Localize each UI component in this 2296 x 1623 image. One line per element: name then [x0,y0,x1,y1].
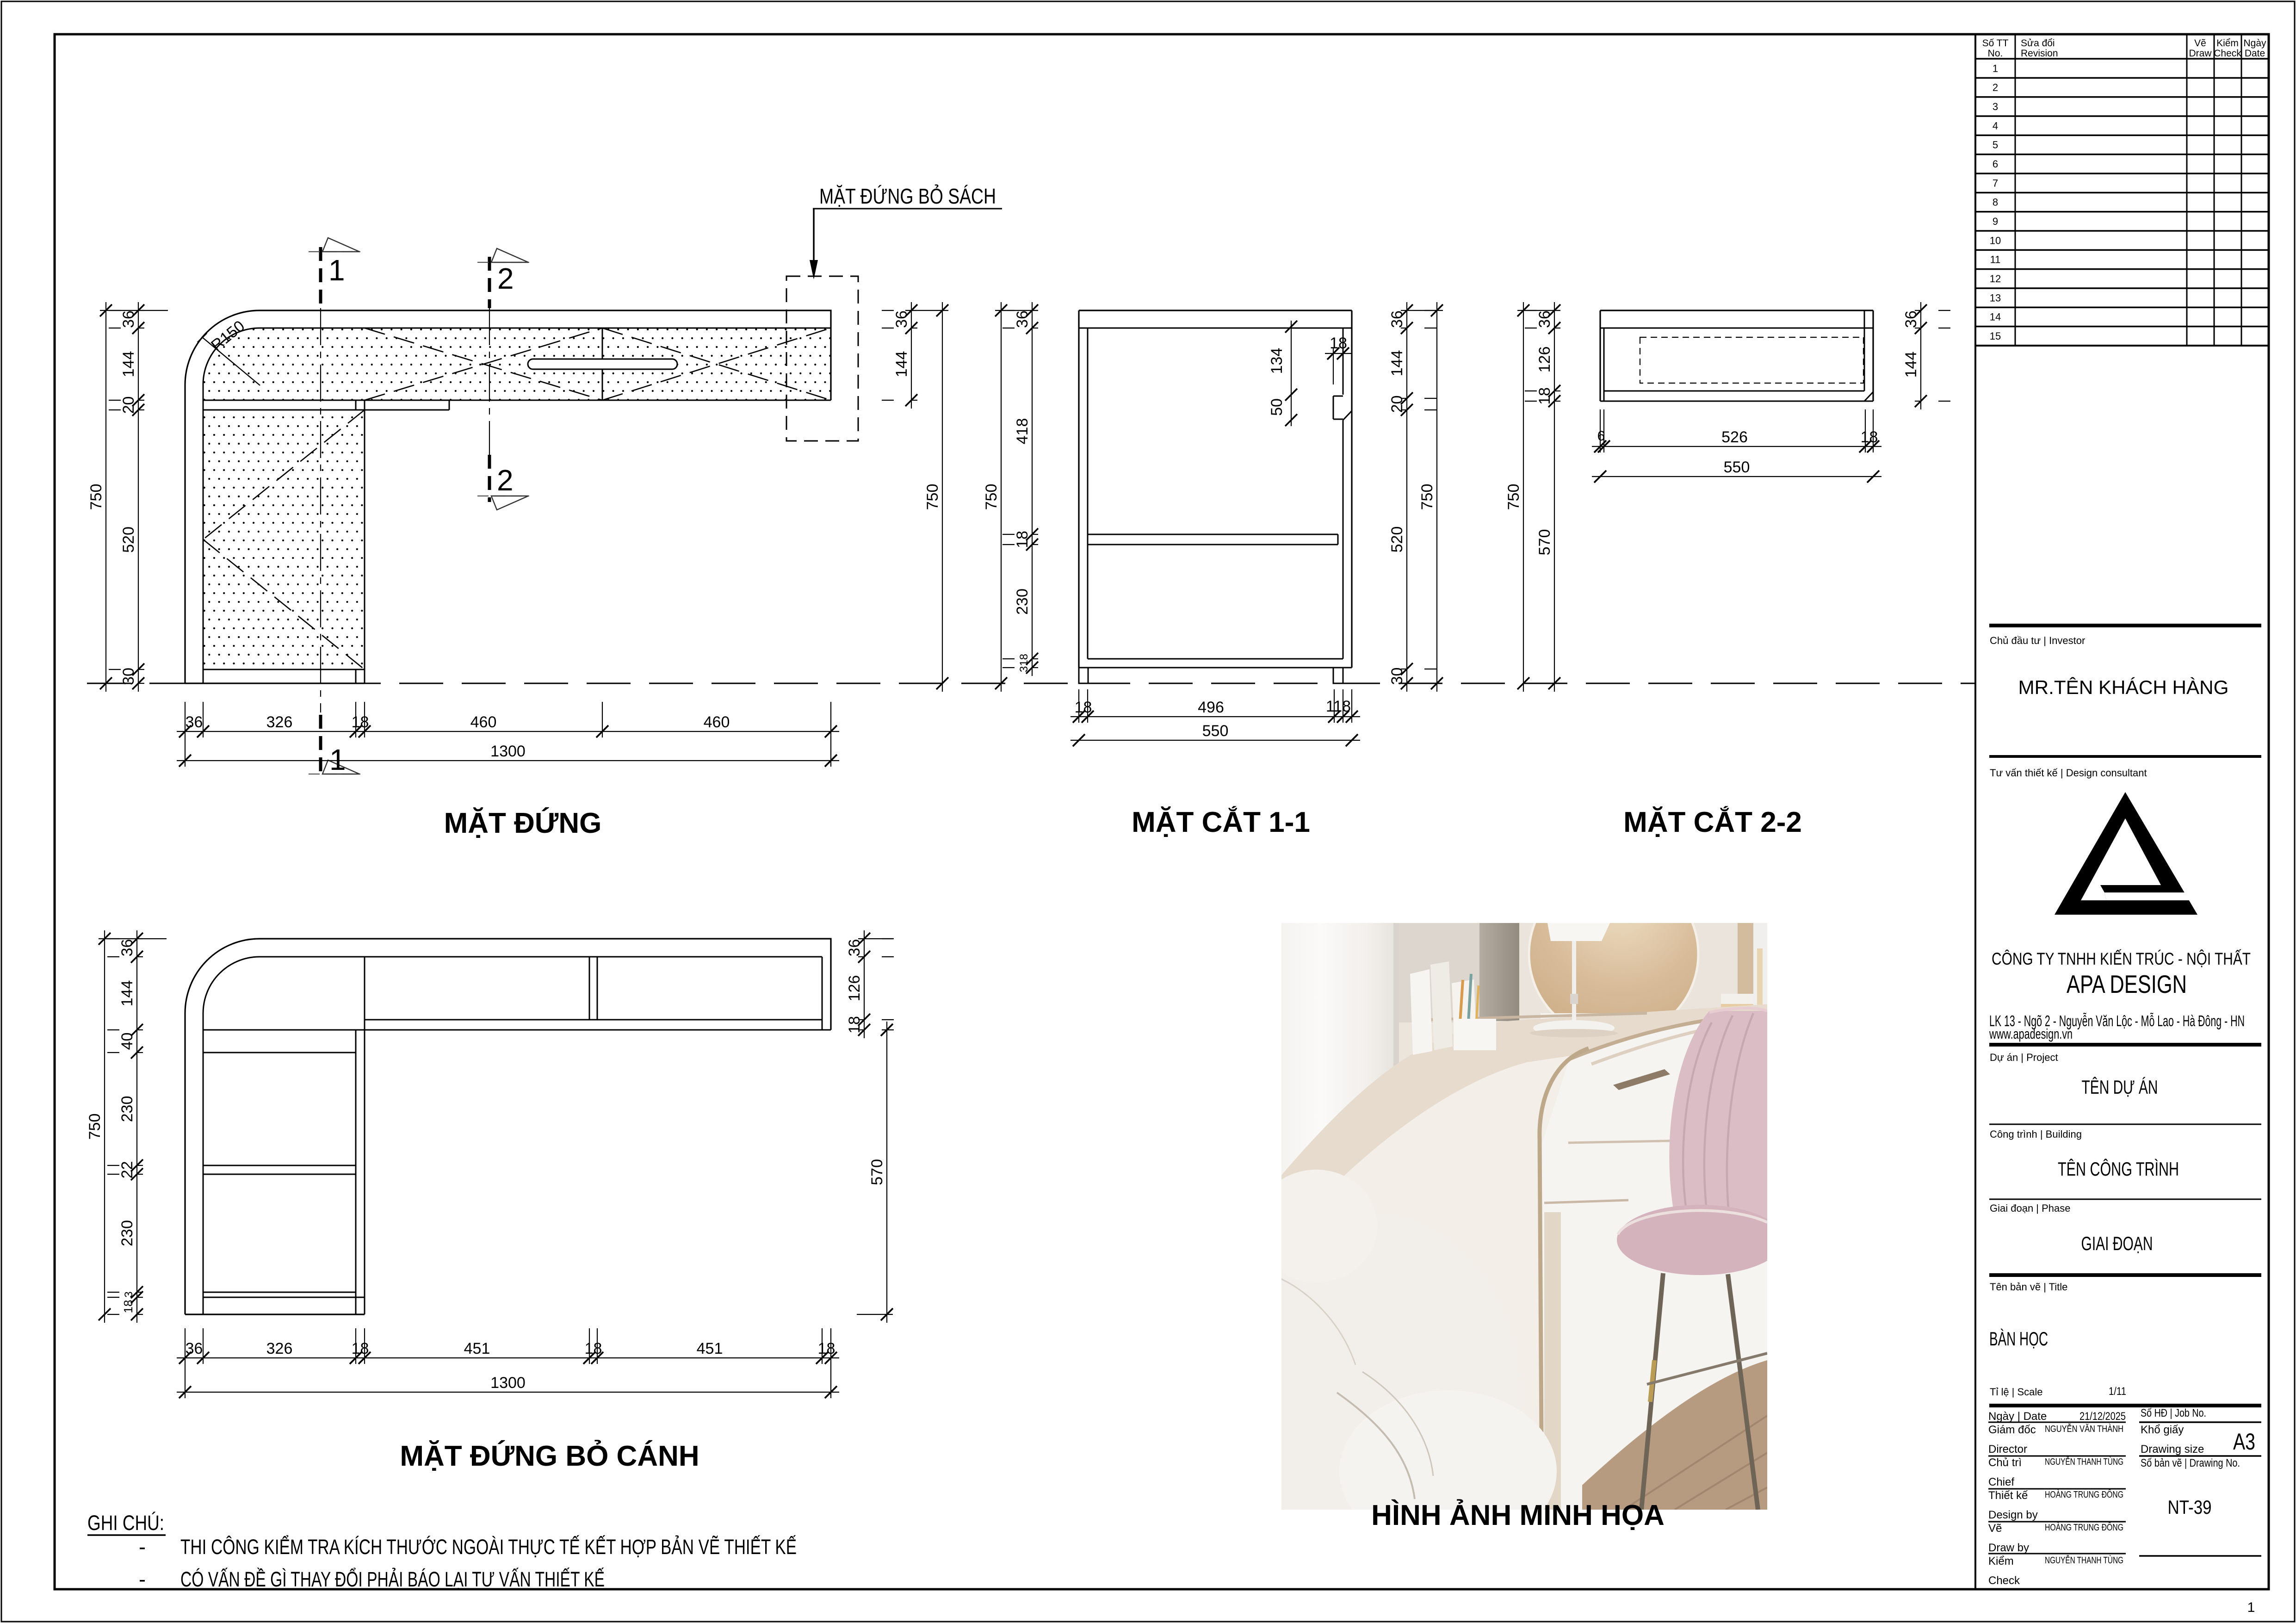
svg-text:Giai đoạn | Phase: Giai đoạn | Phase [1990,1202,2071,1214]
svg-text:18: 18 [1075,699,1092,716]
svg-text:134: 134 [1268,348,1286,374]
svg-text:36: 36 [1536,310,1553,328]
svg-text:40: 40 [118,1033,136,1050]
svg-text:451: 451 [464,1340,490,1357]
svg-text:4: 4 [1993,120,1998,131]
svg-text:HOÀNG TRUNG ĐÔNG: HOÀNG TRUNG ĐÔNG [2045,1489,2123,1500]
svg-text:Design by: Design by [1988,1509,2038,1521]
svg-text:144: 144 [893,351,910,378]
svg-text:Draw: Draw [2189,48,2212,59]
svg-text:A3: A3 [2233,1429,2255,1455]
svg-text:5: 5 [1993,139,1998,151]
svg-text:36: 36 [120,310,137,328]
svg-text:6: 6 [1597,428,1605,444]
svg-text:Tư vấn thiết kế | Design consu: Tư vấn thiết kế | Design consultant [1990,767,2147,779]
svg-text:Số TT: Số TT [1982,38,2009,49]
svg-text:TÊN CÔNG TRÌNH: TÊN CÔNG TRÌNH [2058,1158,2179,1180]
svg-text:36: 36 [1014,310,1031,328]
svg-text:18: 18 [818,1340,835,1357]
svg-text:520: 520 [120,527,137,553]
svg-text:1: 1 [328,254,345,287]
svg-text:126: 126 [1536,347,1553,373]
svg-text:Vẽ: Vẽ [1988,1522,2002,1535]
svg-text:BÀN HỌC: BÀN HỌC [1989,1328,2048,1350]
svg-text:GHI CHÚ:: GHI CHÚ: [87,1511,164,1535]
svg-text:Draw by: Draw by [1988,1542,2029,1554]
svg-text:CÓ VẤN ĐỀ GÌ THAY ĐỔI PHẢI BÁO: CÓ VẤN ĐỀ GÌ THAY ĐỔI PHẢI BÁO LẠI TƯ VẤ… [180,1567,605,1591]
svg-text:570: 570 [1536,529,1553,556]
svg-text:NT-39: NT-39 [2168,1496,2212,1518]
svg-text:No.: No. [1988,48,2003,59]
svg-text:36: 36 [1902,310,1920,328]
svg-text:20: 20 [120,396,137,414]
svg-text:30: 30 [120,668,137,685]
svg-text:21/12/2025: 21/12/2025 [2079,1410,2126,1423]
svg-text:13: 13 [1990,292,2001,304]
svg-text:Công trình | Building: Công trình | Building [1990,1128,2082,1140]
svg-text:750: 750 [86,1114,104,1140]
svg-text:750: 750 [924,484,941,510]
svg-text:Dự án | Project: Dự án | Project [1990,1052,2058,1063]
svg-text:18: 18 [846,1016,863,1034]
svg-text:50: 50 [1268,398,1286,416]
svg-text:Chief: Chief [1988,1476,2014,1488]
svg-text:18: 18 [1014,531,1031,548]
svg-text:GIAI ĐOẠN: GIAI ĐOẠN [2081,1233,2153,1254]
svg-text:20: 20 [1388,396,1406,413]
svg-text:144: 144 [1388,350,1406,377]
svg-text:Chủ trì: Chủ trì [1988,1456,2022,1469]
svg-text:-: - [139,1567,146,1591]
svg-text:11: 11 [1990,254,2001,266]
svg-text:Vẽ: Vẽ [2194,38,2206,49]
svg-text:18: 18 [352,1340,369,1357]
svg-text:Giám đốc: Giám đốc [1988,1424,2036,1436]
svg-text:TÊN DỰ ÁN: TÊN DỰ ÁN [2082,1076,2158,1098]
svg-text:550: 550 [1202,722,1229,740]
svg-text:1: 1 [1993,62,1998,74]
svg-text:460: 460 [704,713,730,731]
svg-text:Ngày | Date: Ngày | Date [1988,1410,2047,1423]
svg-text:230: 230 [118,1096,136,1122]
svg-text:MẶT ĐỨNG BỎ SÁCH: MẶT ĐỨNG BỎ SÁCH [819,184,996,208]
svg-text:18: 18 [1536,387,1553,405]
svg-text:460: 460 [470,713,497,731]
svg-text:118: 118 [1326,698,1351,715]
svg-text:14: 14 [1990,311,2001,323]
svg-text:Ngày: Ngày [2243,38,2266,49]
svg-text:NGUYỄN VĂN THÀNH: NGUYỄN VĂN THÀNH [2045,1424,2123,1434]
svg-text:30: 30 [1388,668,1406,685]
svg-text:Tỉ lệ | Scale: Tỉ lệ | Scale [1990,1386,2043,1398]
svg-text:Thiết kế: Thiết kế [1988,1489,2028,1502]
svg-text:1/11: 1/11 [2109,1385,2126,1398]
svg-text:CÔNG TY TNHH KIẾN TRÚC - NỘI T: CÔNG TY TNHH KIẾN TRÚC - NỘI THẤT [1992,949,2251,968]
svg-text:1: 1 [2247,1600,2255,1615]
svg-text:550: 550 [1724,458,1750,476]
svg-text:1300: 1300 [490,743,526,760]
svg-text:Date: Date [2245,48,2265,59]
svg-text:2: 2 [497,464,514,497]
svg-text:MẶT CẮT 1-1: MẶT CẮT 1-1 [1132,806,1310,838]
svg-text:451: 451 [697,1340,723,1357]
svg-text:APA DESIGN: APA DESIGN [2067,970,2187,998]
svg-text:Drawing size: Drawing size [2141,1443,2204,1456]
svg-text:22: 22 [118,1161,136,1179]
svg-text:126: 126 [846,975,863,1002]
svg-text:1: 1 [329,743,346,776]
svg-text:Revision: Revision [2021,48,2058,59]
svg-text:230: 230 [118,1220,136,1246]
svg-text:750: 750 [983,484,1000,510]
svg-text:526: 526 [1721,428,1748,446]
svg-text:www.apadesign.vn: www.apadesign.vn [1989,1026,2073,1042]
svg-text:Sửa đổi: Sửa đổi [2021,38,2055,49]
svg-text:7: 7 [1993,177,1998,189]
svg-text:8: 8 [1993,197,1998,208]
svg-text:750: 750 [1505,484,1522,510]
svg-text:-: - [139,1535,146,1559]
svg-text:Chủ đầu tư | Investor: Chủ đầu tư | Investor [1990,635,2085,646]
svg-text:750: 750 [87,484,105,510]
svg-text:144: 144 [1902,352,1920,378]
svg-text:570: 570 [868,1159,886,1185]
svg-text:MẶT ĐỨNG: MẶT ĐỨNG [444,807,602,839]
svg-text:2: 2 [497,262,514,295]
svg-text:15: 15 [1990,330,2001,342]
svg-text:18: 18 [121,1300,135,1313]
svg-text:10: 10 [1990,235,2001,246]
svg-text:1300: 1300 [490,1374,526,1392]
svg-text:520: 520 [1388,527,1406,553]
svg-text:418: 418 [1014,418,1031,445]
svg-text:HOÀNG TRUNG ĐÔNG: HOÀNG TRUNG ĐÔNG [2045,1522,2123,1533]
svg-text:12: 12 [1990,273,2001,285]
svg-text:144: 144 [118,980,136,1007]
svg-text:Số HĐ | Job No.: Số HĐ | Job No. [2141,1407,2206,1419]
svg-text:326: 326 [266,1340,293,1357]
svg-text:Check: Check [2214,48,2241,59]
svg-text:3: 3 [1993,101,1998,112]
svg-text:HÌNH ẢNH MINH HỌA: HÌNH ẢNH MINH HỌA [1371,1499,1665,1531]
svg-text:MR.TÊN KHÁCH HÀNG: MR.TÊN KHÁCH HÀNG [2018,676,2229,698]
svg-text:36: 36 [1388,310,1406,328]
svg-text:496: 496 [1198,699,1224,716]
svg-text:230: 230 [1014,588,1031,615]
svg-text:Tên bản vẽ | Title: Tên bản vẽ | Title [1990,1281,2067,1293]
svg-text:18: 18 [352,713,369,731]
svg-text:318: 318 [1018,654,1030,672]
svg-text:Check: Check [1988,1574,2020,1587]
svg-text:Khổ giấy: Khổ giấy [2141,1424,2184,1436]
svg-text:MẶT CẮT 2-2: MẶT CẮT 2-2 [1623,806,1802,838]
svg-text:Số bản vẽ | Drawing No.: Số bản vẽ | Drawing No. [2141,1457,2240,1469]
svg-text:18: 18 [1330,335,1347,352]
svg-text:THI CÔNG KIỂM TRA KÍCH THƯỚC N: THI CÔNG KIỂM TRA KÍCH THƯỚC NGOÀI THỰC … [180,1535,797,1559]
svg-text:144: 144 [120,351,137,378]
svg-text:MẶT ĐỨNG BỎ CÁNH: MẶT ĐỨNG BỎ CÁNH [400,1440,699,1472]
svg-text:6: 6 [1993,158,1998,170]
svg-text:750: 750 [1418,484,1436,510]
svg-text:36: 36 [846,939,863,957]
svg-text:9: 9 [1993,216,1998,227]
svg-text:36: 36 [893,310,910,328]
svg-text:Director: Director [1988,1443,2027,1456]
svg-text:Kiểm: Kiểm [1988,1555,2014,1567]
svg-text:36: 36 [118,939,136,957]
svg-text:NGUYỄN THANH TÙNG: NGUYỄN THANH TÙNG [2045,1456,2123,1467]
svg-text:2: 2 [1993,82,1998,93]
svg-text:Kiểm: Kiểm [2216,38,2239,49]
svg-text:NGUYỄN THANH TÙNG: NGUYỄN THANH TÙNG [2045,1555,2123,1566]
svg-text:326: 326 [266,713,293,731]
svg-text:3: 3 [123,1291,135,1297]
